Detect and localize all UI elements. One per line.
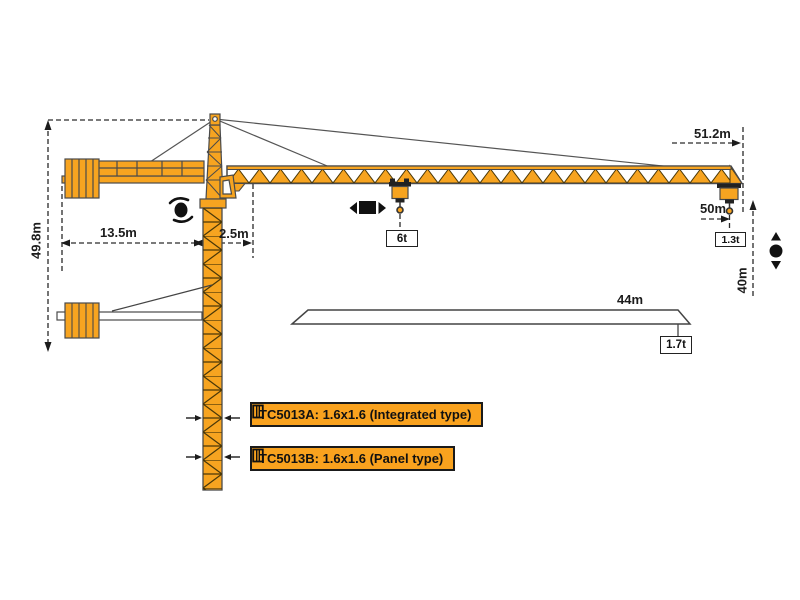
model-label-text: TC5013B: 1.6x1.6 (Panel type) xyxy=(259,451,443,466)
crane-drawing xyxy=(0,0,800,600)
jib-lattice xyxy=(228,169,730,183)
trolley-frame xyxy=(717,184,741,189)
hoist-up-down-icon xyxy=(770,232,783,270)
counter-jib xyxy=(62,159,204,198)
slewing-platform xyxy=(200,199,226,208)
working-radius-label: 50m xyxy=(700,201,726,216)
tie-bars xyxy=(150,119,720,172)
apex-pulley xyxy=(213,117,218,122)
mast-lattice xyxy=(203,208,222,490)
hook-travel-label: 40m xyxy=(735,256,750,306)
tie-bar-jib-outer xyxy=(215,119,720,172)
hoist-block xyxy=(720,188,738,200)
hoist-block xyxy=(392,187,408,199)
counter-jib-length-label: 13.5m xyxy=(100,225,137,240)
jib xyxy=(227,166,742,191)
mid-trolley xyxy=(389,179,411,214)
tip-load-box: 1.3t xyxy=(715,232,746,247)
operator-cab xyxy=(220,175,236,198)
total-height-label: 49.8m xyxy=(29,211,44,271)
ground-counterweight-assembly xyxy=(57,285,212,338)
slew-rotation-icon xyxy=(170,198,192,221)
mast xyxy=(203,208,222,490)
hook xyxy=(397,207,403,213)
counterweight-blocks xyxy=(65,159,99,198)
max-load-box: 6t xyxy=(386,230,418,247)
tie-bar-jib-inner xyxy=(215,119,332,168)
trolley-travel-icon xyxy=(350,201,387,214)
overall-radius-label: 51.2m xyxy=(694,126,731,141)
mid-jib-length-label: 44m xyxy=(617,292,643,307)
crane-diagram: 51.2m 49.8m 13.5m 2.5m 50m 40m 44m 6t 1.… xyxy=(0,0,800,600)
tie-bar-counterjib xyxy=(150,119,215,162)
erection-tie-line xyxy=(112,285,212,311)
model-label-text: TC5013A: 1.6x1.6 (Integrated type) xyxy=(259,407,471,422)
counterweight-blocks xyxy=(65,303,99,338)
model-label-panel: TC5013B: 1.6x1.6 (Panel type) xyxy=(250,446,455,471)
hook xyxy=(727,208,733,214)
mid-tip-load-box: 1.7t xyxy=(660,336,692,354)
model-label-integrated: TC5013A: 1.6x1.6 (Integrated type) xyxy=(250,402,483,427)
jib-root-offset-label: 2.5m xyxy=(219,226,249,241)
trolley-frame xyxy=(389,182,411,187)
mid-jib-load-bar xyxy=(292,310,690,336)
